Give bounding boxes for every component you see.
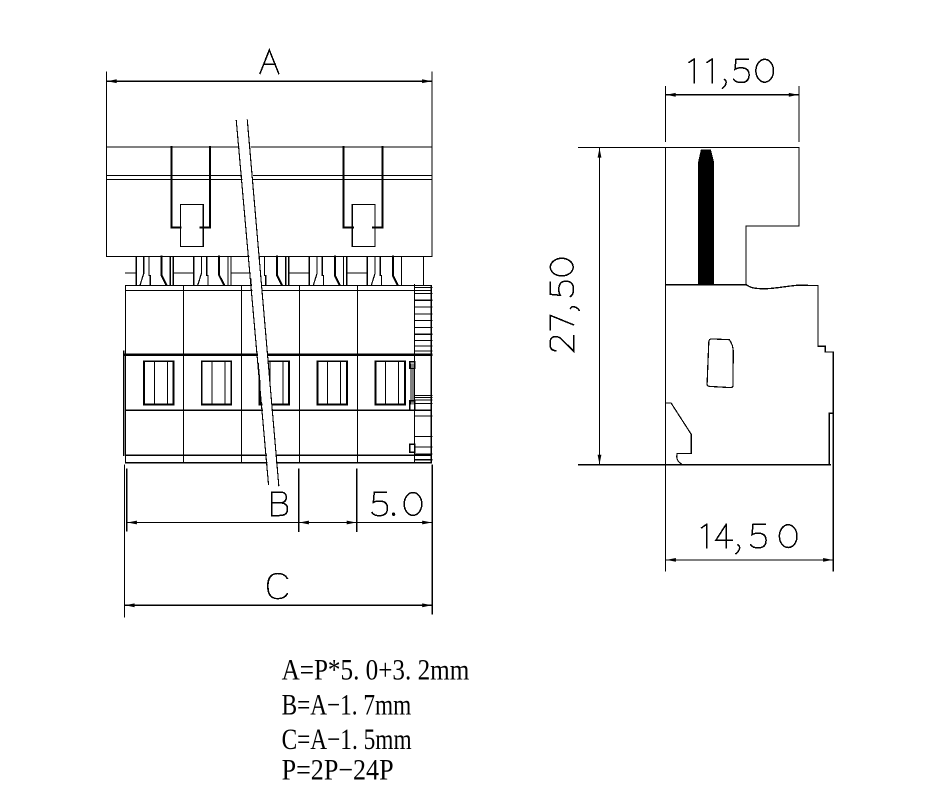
svg-text:C=A−1. 5mm: C=A−1. 5mm xyxy=(282,723,412,756)
svg-text:P=2P−24P: P=2P−24P xyxy=(282,753,394,786)
svg-text:B=A−1. 7mm: B=A−1. 7mm xyxy=(282,689,412,722)
svg-text:A=P*5. 0+3. 2mm: A=P*5. 0+3. 2mm xyxy=(282,653,470,686)
